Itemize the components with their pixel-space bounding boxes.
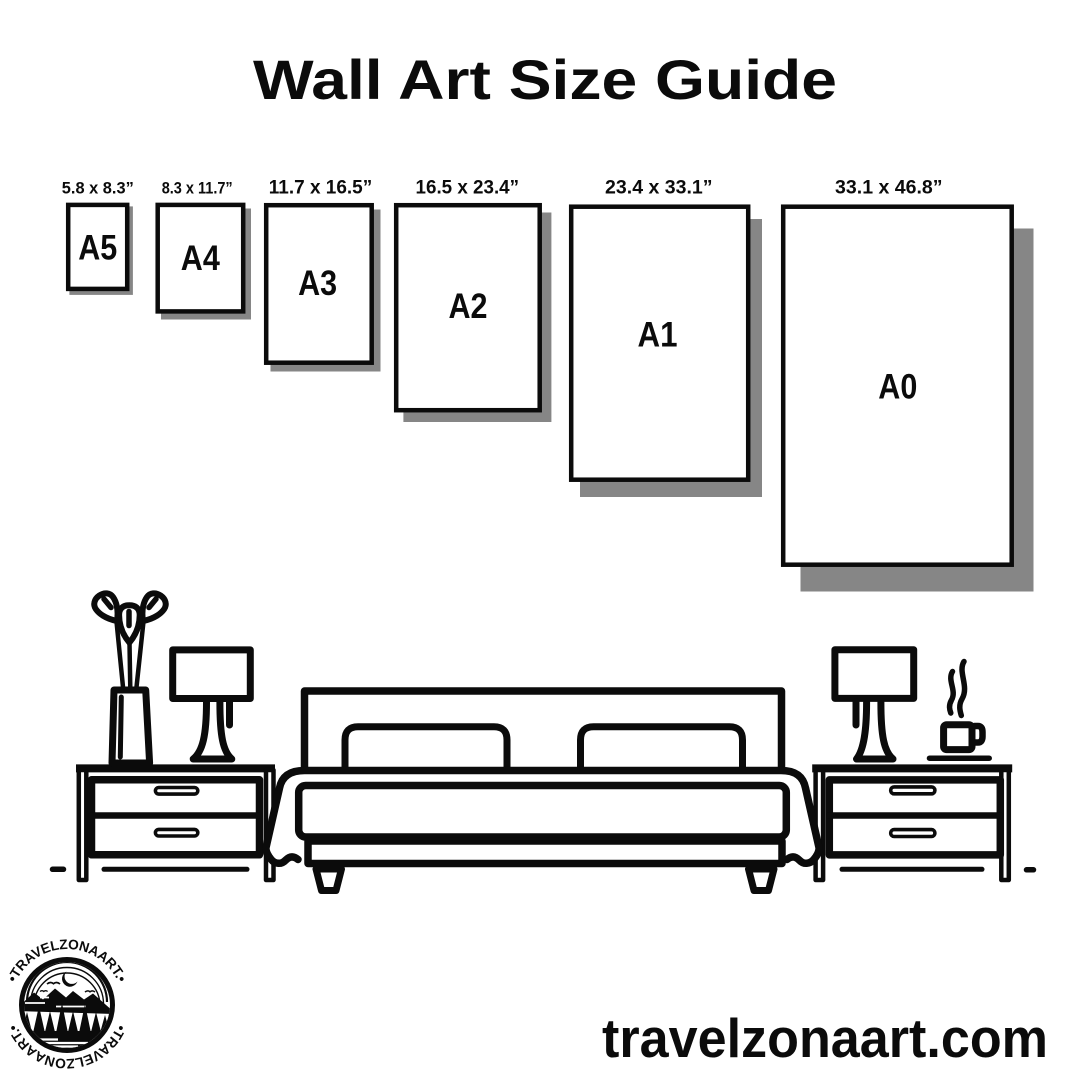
svg-text:23.4 x 33.1”: 23.4 x 33.1”	[605, 177, 713, 199]
svg-text:A1: A1	[638, 316, 678, 355]
svg-text:Wall Art Size Guide: Wall Art Size Guide	[253, 48, 837, 111]
svg-text:11.7 x 16.5”: 11.7 x 16.5”	[269, 178, 373, 199]
svg-text:A3: A3	[298, 264, 337, 303]
svg-text:travelzonaart.com: travelzonaart.com	[602, 1007, 1048, 1069]
svg-text:A4: A4	[181, 239, 220, 278]
svg-text:A2: A2	[449, 287, 488, 326]
svg-text:16.5 x 23.4”: 16.5 x 23.4”	[416, 178, 520, 199]
svg-text:A0: A0	[878, 368, 917, 407]
svg-text:5.8 x 8.3”: 5.8 x 8.3”	[62, 180, 134, 198]
svg-text:33.1 x 46.8”: 33.1 x 46.8”	[835, 177, 943, 199]
svg-text:8.3 x 11.7”: 8.3 x 11.7”	[162, 180, 233, 198]
svg-text:A5: A5	[78, 229, 117, 268]
